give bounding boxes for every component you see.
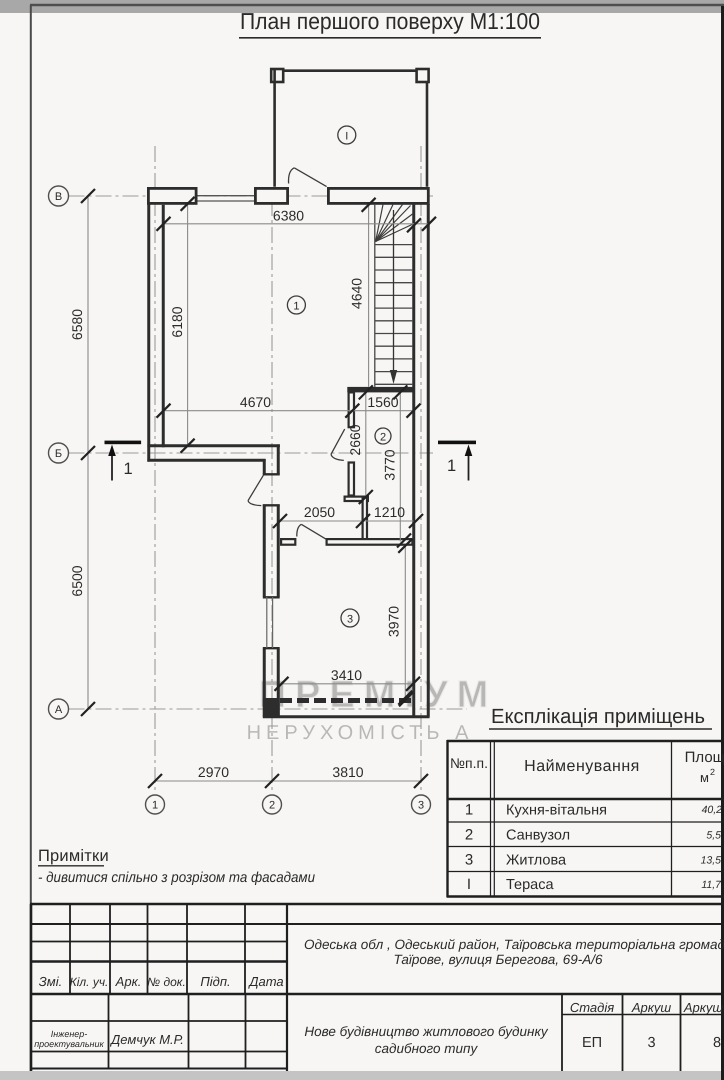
svg-text:НЕРУХОМІСТЬ А: НЕРУХОМІСТЬ А — [247, 722, 474, 744]
svg-text:А: А — [55, 704, 63, 716]
svg-text:Примітки: Примітки — [38, 847, 109, 865]
svg-text:І: І — [345, 131, 348, 143]
svg-text:3: 3 — [418, 800, 424, 812]
svg-text:1560: 1560 — [367, 394, 398, 410]
svg-text:Арк.: Арк. — [115, 974, 142, 989]
svg-text:2050: 2050 — [304, 504, 335, 520]
svg-text:1: 1 — [447, 457, 456, 475]
svg-text:1: 1 — [465, 802, 473, 819]
svg-text:Санвузол: Санвузол — [506, 828, 570, 844]
svg-text:6580: 6580 — [69, 309, 85, 340]
svg-text:2970: 2970 — [198, 764, 229, 780]
svg-text:Найменування: Найменування — [524, 758, 640, 775]
svg-text:3770: 3770 — [382, 449, 398, 480]
svg-text:4640: 4640 — [349, 278, 365, 309]
svg-text:Стадія: Стадія — [570, 1000, 614, 1015]
svg-text:6180: 6180 — [169, 306, 185, 337]
svg-text:3410: 3410 — [331, 667, 362, 683]
svg-text:11,7: 11,7 — [701, 879, 722, 891]
svg-text:2: 2 — [269, 800, 275, 812]
svg-text:2: 2 — [465, 827, 473, 844]
svg-text:Одеська обл , Одеський район,: Одеська обл , Одеський район, Таїровська… — [304, 937, 724, 952]
svg-text:3970: 3970 — [386, 606, 402, 637]
svg-text:Змі.: Змі. — [39, 974, 62, 989]
svg-text:40,2: 40,2 — [702, 804, 723, 816]
svg-text:Житлова: Житлова — [506, 853, 567, 869]
svg-text:садибного типу: садибного типу — [375, 1041, 479, 1056]
svg-text:8: 8 — [713, 1035, 721, 1051]
svg-text:Аркуш: Аркуш — [631, 1000, 672, 1015]
svg-text:2660: 2660 — [347, 424, 363, 455]
svg-text:Дата: Дата — [247, 974, 283, 989]
svg-text:1: 1 — [293, 301, 299, 313]
svg-text:Тераса: Тераса — [506, 877, 554, 893]
svg-text:- дивитися спільно з розрізом: - дивитися спільно з розрізом та фасадам… — [38, 870, 315, 886]
svg-text:3: 3 — [465, 852, 473, 869]
svg-text:№ док.: № док. — [147, 975, 186, 989]
svg-text:Підп.: Підп. — [200, 974, 230, 989]
svg-text:Демчук М.Р.: Демчук М.Р. — [109, 1032, 184, 1047]
svg-text:Кіл. уч.: Кіл. уч. — [70, 975, 109, 989]
svg-text:3810: 3810 — [332, 764, 363, 780]
svg-text:В: В — [55, 191, 62, 203]
svg-text:Б: Б — [55, 448, 62, 460]
svg-text:Експлікація приміщень: Експлікація приміщень — [491, 705, 705, 728]
svg-text:13,5: 13,5 — [701, 855, 722, 867]
svg-text:проектувальник: проектувальник — [34, 1039, 104, 1049]
svg-text:1: 1 — [124, 460, 133, 478]
svg-text:Кухня-вітальня: Кухня-вітальня — [506, 803, 607, 819]
svg-text:Інженер-: Інженер- — [51, 1029, 88, 1039]
svg-text:Таїрове, вулиця Берегова, 69-А: Таїрове, вулиця Берегова, 69-А/6 — [393, 952, 603, 967]
svg-text:2: 2 — [710, 767, 715, 777]
svg-text:План першого поверху М1:100: План першого поверху М1:100 — [240, 8, 540, 34]
svg-text:1210: 1210 — [374, 504, 405, 520]
svg-text:м: м — [700, 770, 709, 785]
svg-text:6500: 6500 — [69, 565, 85, 596]
svg-text:І: І — [467, 876, 471, 893]
svg-text:Аркуші: Аркуші — [683, 1000, 724, 1015]
svg-text:2: 2 — [380, 432, 386, 444]
svg-text:ПРЕМІУМ: ПРЕМІУМ — [259, 674, 498, 716]
svg-text:Площа: Площа — [685, 749, 724, 766]
svg-text:ЕП: ЕП — [582, 1035, 602, 1051]
svg-text:4670: 4670 — [240, 394, 271, 410]
svg-text:№п.п.: №п.п. — [450, 755, 488, 771]
svg-text:1: 1 — [152, 800, 158, 812]
svg-text:3: 3 — [647, 1035, 655, 1051]
svg-text:3: 3 — [347, 614, 353, 626]
svg-text:6380: 6380 — [273, 208, 304, 224]
svg-text:5,5: 5,5 — [706, 830, 721, 842]
svg-text:Нове будівництво житлового буд: Нове будівництво житлового будинку — [304, 1024, 548, 1039]
